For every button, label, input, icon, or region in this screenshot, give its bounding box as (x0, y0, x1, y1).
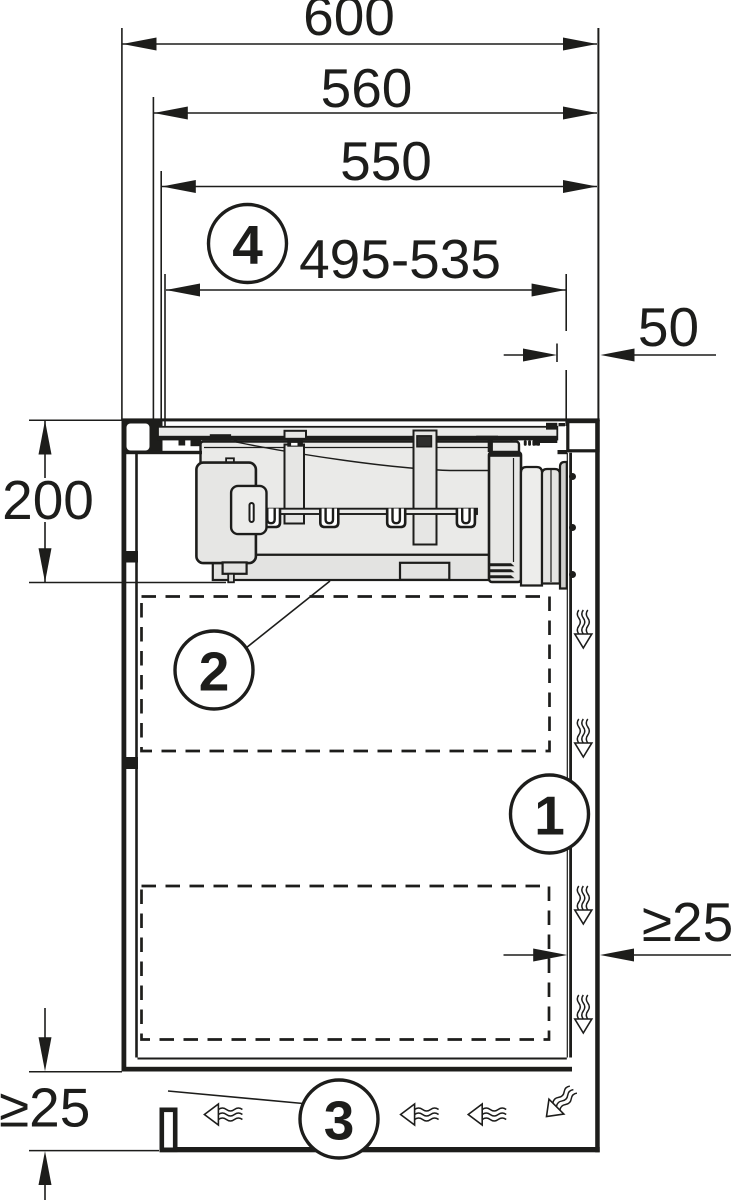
svg-text:3: 3 (324, 1090, 355, 1152)
svg-text:2: 2 (199, 641, 230, 703)
svg-text:560: 560 (321, 57, 413, 119)
svg-text:4: 4 (232, 214, 263, 276)
svg-text:550: 550 (340, 130, 432, 192)
svg-text:≥25: ≥25 (642, 891, 733, 953)
svg-text:≥25: ≥25 (0, 1077, 90, 1139)
svg-text:600: 600 (303, 0, 395, 47)
svg-text:200: 200 (2, 469, 94, 531)
svg-text:50: 50 (638, 296, 699, 358)
svg-text:1: 1 (534, 785, 565, 847)
svg-text:495-535: 495-535 (299, 228, 501, 290)
